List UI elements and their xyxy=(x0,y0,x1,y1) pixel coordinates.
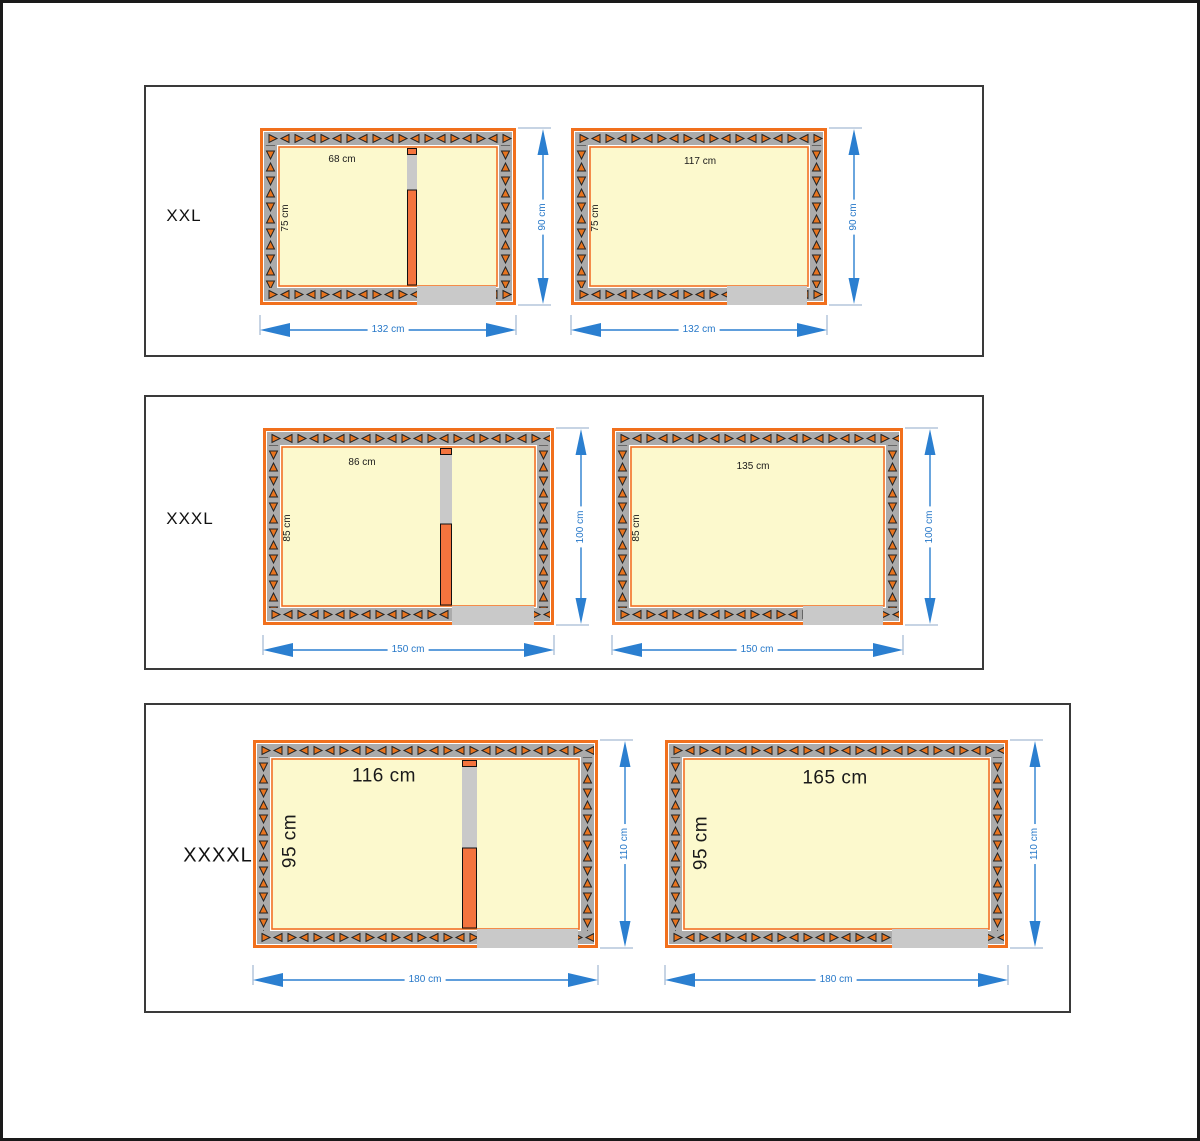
arrow-left xyxy=(665,973,695,987)
inner-height-label: 75 cm xyxy=(591,204,601,231)
outer-height-dimension xyxy=(516,125,556,308)
outer-height-dimension xyxy=(598,737,638,951)
outer-height-dimension xyxy=(554,425,594,628)
arrow-up xyxy=(925,429,936,455)
arrow-down xyxy=(576,598,587,624)
outer-height-dim-label: 110 cm xyxy=(619,824,631,864)
panel-label-xxl: XXL xyxy=(166,206,201,226)
inner-height-label: 85 cm xyxy=(283,514,293,541)
inner-height-label: 85 cm xyxy=(632,514,642,541)
arrow-right xyxy=(486,323,516,337)
arrow-up xyxy=(576,429,587,455)
panel-label-xxxl: XXXL xyxy=(166,509,213,529)
outer-height-dimension xyxy=(903,425,943,628)
floor-plan-two-chamber xyxy=(253,740,598,948)
room-plan xyxy=(612,428,903,625)
arrow-right xyxy=(568,973,598,987)
arrow-left xyxy=(263,643,293,657)
outer-height-dimension xyxy=(1008,737,1048,951)
drawing-sheet: { "sheet": { "unit": "cm", "description_… xyxy=(0,0,1200,1141)
outer-height-dimension xyxy=(827,125,867,308)
divider-wall xyxy=(440,448,452,605)
outer-height-dim-label: 110 cm xyxy=(1029,824,1041,864)
room-plan xyxy=(263,428,554,625)
outer-width-dim-label: 180 cm xyxy=(405,974,446,986)
outer-height-dim-label: 100 cm xyxy=(924,507,936,548)
panel-label-xxxxl: XXXXL xyxy=(183,845,252,868)
inner-width-label: 135 cm xyxy=(737,462,770,472)
vertical-dimension xyxy=(827,125,867,308)
arrow-down xyxy=(538,278,549,304)
vertical-dimension xyxy=(598,737,638,951)
inner-width-label: 116 cm xyxy=(352,767,416,786)
inner-width-label: 86 cm xyxy=(348,458,375,468)
outer-height-dim-label: 90 cm xyxy=(848,199,860,234)
inner-width-label: 117 cm xyxy=(684,157,716,167)
door-opening xyxy=(727,286,807,305)
door-opening xyxy=(892,929,988,948)
inner-height-label: 95 cm xyxy=(692,816,711,870)
arrow-down xyxy=(620,921,631,947)
inner-width-label: 165 cm xyxy=(802,769,867,788)
arrow-left xyxy=(253,973,283,987)
inner-width-label: 68 cm xyxy=(328,155,355,165)
inner-height-label: 95 cm xyxy=(281,814,300,868)
vertical-dimension xyxy=(516,125,556,308)
divider-wall xyxy=(407,148,417,285)
room-plan xyxy=(253,740,598,948)
divider-wall xyxy=(462,760,477,928)
door-opening xyxy=(803,606,883,625)
floor-plan-two-chamber xyxy=(263,428,554,625)
room-plan xyxy=(260,128,516,305)
outer-width-dim-label: 180 cm xyxy=(816,974,857,986)
door-opening xyxy=(417,286,496,305)
arrow-down xyxy=(849,278,860,304)
floor-plan-single-chamber xyxy=(571,128,827,305)
arrow-up xyxy=(849,129,860,155)
outer-width-dim-label: 132 cm xyxy=(679,324,720,336)
inner-height-label: 75 cm xyxy=(281,204,291,231)
arrow-left xyxy=(612,643,642,657)
door-opening xyxy=(477,929,578,948)
arrow-right xyxy=(797,323,827,337)
arrow-down xyxy=(1030,921,1041,947)
arrow-left xyxy=(571,323,601,337)
floor-plan-canvas: XXL XXXL XXXXL 68 cm 117 cm 86 cm 135 cm… xyxy=(0,0,1200,1141)
floor-plan-single-chamber xyxy=(612,428,903,625)
outer-height-dim-label: 90 cm xyxy=(537,199,549,234)
floor-plan-two-chamber xyxy=(260,128,516,305)
arrow-up xyxy=(538,129,549,155)
arrow-up xyxy=(1030,741,1041,767)
room-plan xyxy=(571,128,827,305)
arrow-right xyxy=(873,643,903,657)
door-opening xyxy=(452,606,534,625)
arrow-up xyxy=(620,741,631,767)
vertical-dimension xyxy=(903,425,943,628)
arrow-right xyxy=(524,643,554,657)
vertical-dimension xyxy=(554,425,594,628)
arrow-right xyxy=(978,973,1008,987)
outer-height-dim-label: 100 cm xyxy=(575,507,587,548)
outer-width-dim-label: 150 cm xyxy=(388,644,429,656)
outer-width-dim-label: 150 cm xyxy=(737,644,778,656)
outer-width-dim-label: 132 cm xyxy=(368,324,409,336)
arrow-down xyxy=(925,598,936,624)
vertical-dimension xyxy=(1008,737,1048,951)
arrow-left xyxy=(260,323,290,337)
